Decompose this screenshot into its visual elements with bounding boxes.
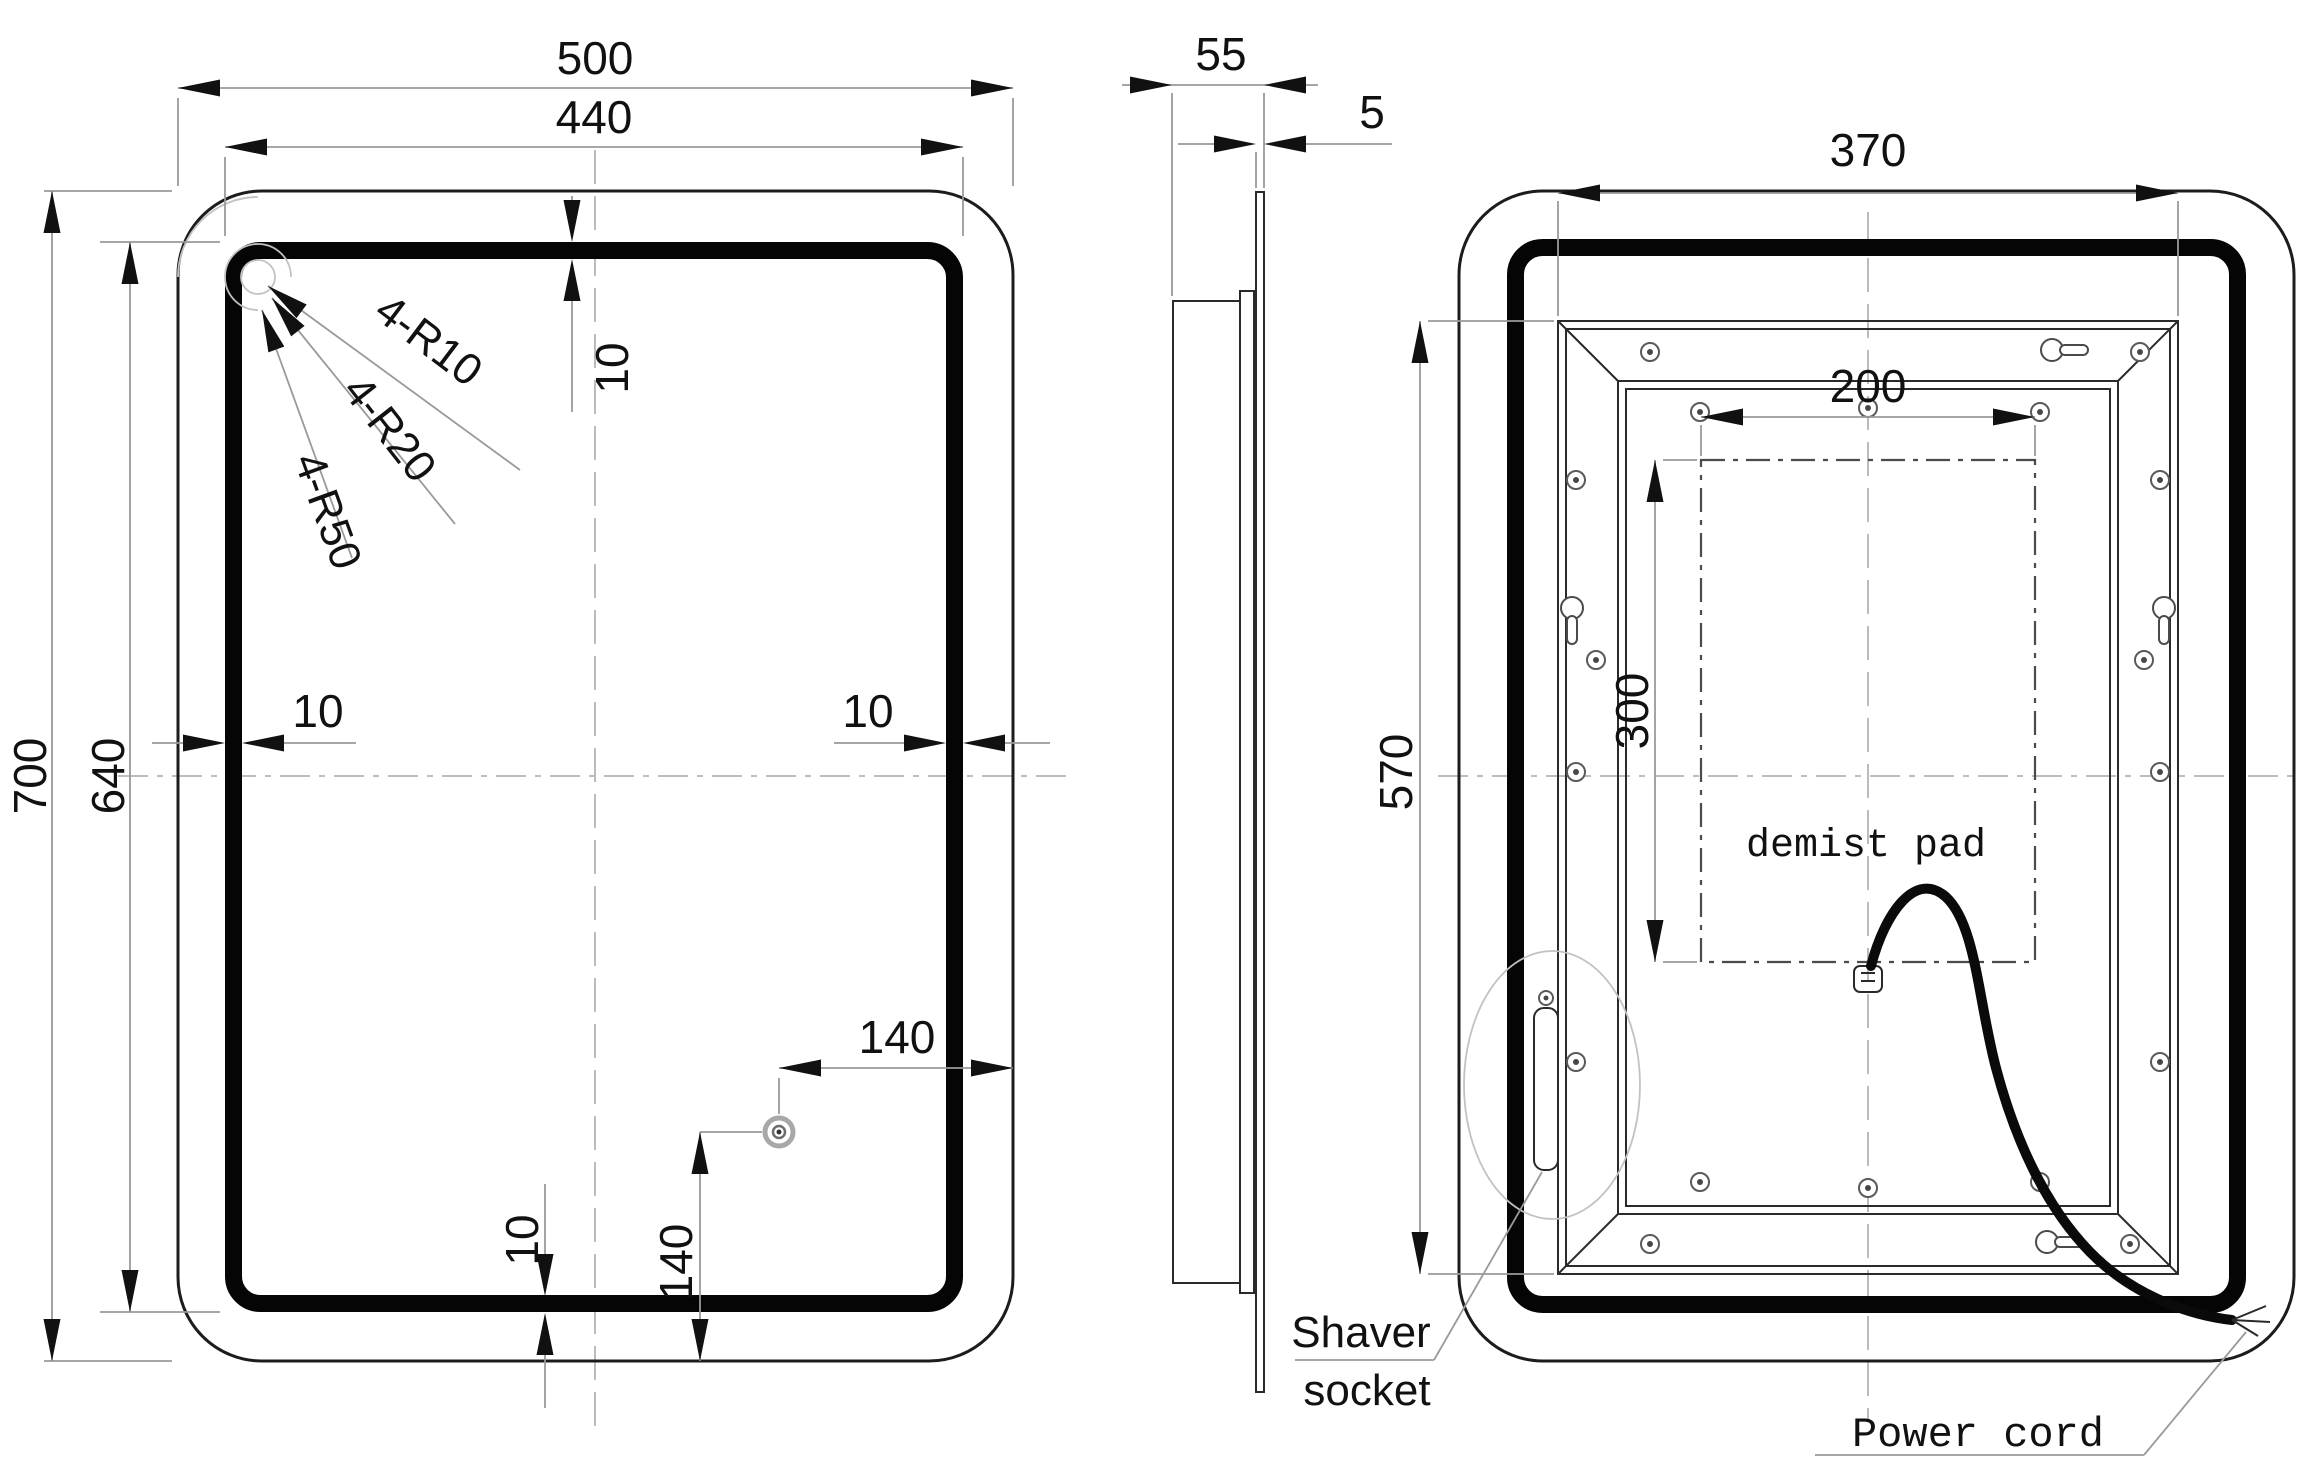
screw [1567,1053,1585,1071]
screw [2151,763,2169,781]
dim-label-640: 640 [82,738,134,815]
dim-strip-left-10: 10 [152,685,356,752]
corner-radius-callouts: 4-R10 4-R20 4-R50 [254,279,520,576]
screw [1691,403,1709,421]
side-housing-flange [1240,291,1254,1293]
dim-strip-top-10: 10 [564,196,639,412]
screw [1641,1235,1659,1253]
screw [1567,763,1585,781]
side-glass-panel [1256,192,1264,1392]
dim-label-370: 370 [1830,124,1907,176]
mirror-technical-drawing: 4-R10 4-R20 4-R50 500 440 [0,0,2302,1460]
power-cord-callout: Power cord [1815,1332,2246,1459]
dim-led-height-640: 640 [82,242,220,1312]
dim-label-700: 700 [4,738,56,815]
dim-label-570: 570 [1370,734,1422,811]
dim-pad-height-300: 300 [1606,460,1697,962]
side-view: 55 5 [1122,28,1392,1392]
dim-label-55: 55 [1195,28,1246,80]
dim-pad-width-200: 200 [1701,360,2035,456]
side-housing-body [1173,301,1240,1283]
technical-drawing-canvas: 4-R10 4-R20 4-R50 500 440 [0,0,2302,1460]
dim-label-300: 300 [1606,673,1658,750]
screw [1567,471,1585,489]
back-view: demist pad 370 570 200 [1291,124,2300,1459]
front-led-strip-band [234,251,955,1304]
screw [2151,471,2169,489]
demist-pad-label: demist pad [1746,824,1986,869]
keyhole-right [2153,597,2175,644]
screw [1587,651,1605,669]
dim-strip-right-10: 10 [834,685,1050,752]
screw [2135,651,2153,669]
dim-sensor-x-140: 140 [779,1011,1013,1114]
dim-label-top-10: 10 [586,342,638,393]
radius-r10-arc [241,260,275,294]
dim-glass-5: 5 [1178,86,1392,188]
screw [1641,343,1659,361]
radius-label-r10: 4-R10 [366,285,491,396]
shaver-socket-body [1534,1008,1558,1170]
shaver-socket-label-line2: socket [1303,1366,1430,1415]
dim-label-5: 5 [1359,86,1385,138]
screw [1691,1173,1709,1191]
power-cord-label: Power cord [1852,1411,2104,1459]
shaver-socket [1464,951,1640,1219]
radius-label-r20: 4-R20 [333,367,445,492]
screw [2131,343,2149,361]
shaver-socket-label-line1: Shaver [1291,1308,1430,1357]
dim-sensor-y-140: 140 [650,1132,762,1361]
shaver-socket-callout: Shaver socket [1291,1172,1542,1415]
dim-label-bottom-10: 10 [496,1214,548,1265]
dim-label-140-v: 140 [650,1224,702,1301]
dim-label-140-h: 140 [859,1011,936,1063]
radius-label-r50: 4-R50 [284,446,371,575]
dim-label-440: 440 [556,91,633,143]
dim-led-width-440: 440 [225,91,963,236]
dim-label-right-10: 10 [842,685,893,737]
screw [1859,1179,1877,1197]
dim-label-left-10: 10 [292,685,343,737]
dim-label-500: 500 [557,32,634,84]
front-view: 4-R10 4-R20 4-R50 500 440 [4,32,1072,1432]
power-cord [1854,889,2270,1336]
keyhole-top-right [2041,339,2088,361]
dim-panel-height-570: 570 [1370,321,1554,1274]
screw [2151,1053,2169,1071]
dim-depth-55: 55 [1122,28,1318,296]
dim-label-200: 200 [1830,360,1907,412]
keyhole-left [1561,597,1583,644]
screw [2031,403,2049,421]
screw [2121,1235,2139,1253]
shaver-socket-detail-circle [1464,951,1640,1219]
touch-sensor [765,1118,793,1146]
